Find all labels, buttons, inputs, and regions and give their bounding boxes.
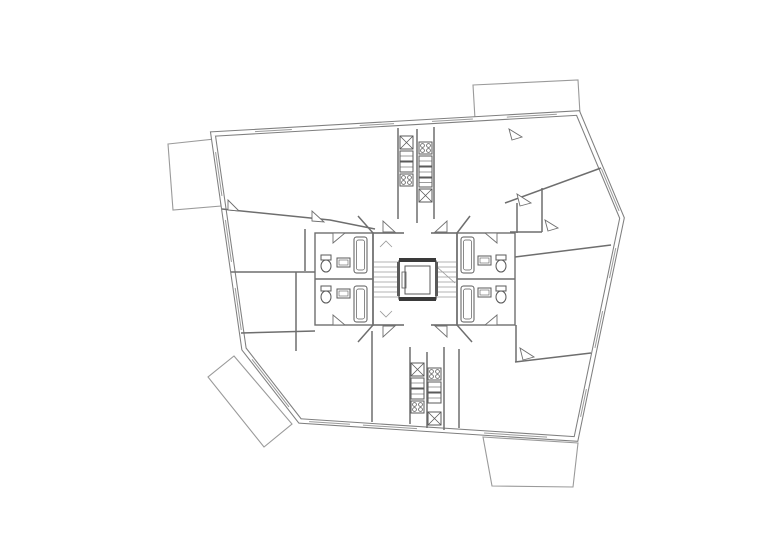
elevator-door-track — [399, 297, 436, 301]
elevator-guide-rail — [397, 262, 400, 296]
floor-plan-drawing — [0, 0, 780, 551]
elevator-guide-rail — [435, 262, 438, 296]
elevator-door-track — [399, 258, 436, 262]
floor-plan-page — [0, 0, 780, 551]
balcony-bottom-right — [483, 437, 578, 487]
